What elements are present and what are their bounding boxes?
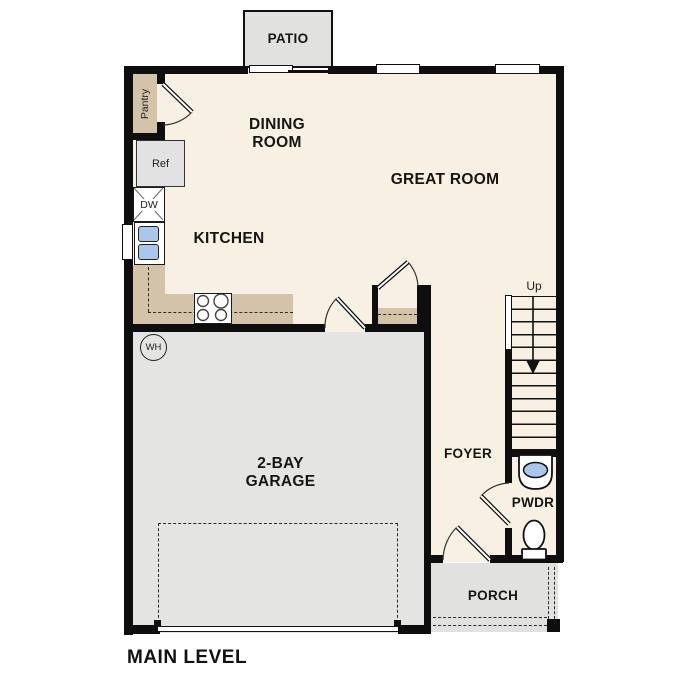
- garage-label: 2-BAY GARAGE: [233, 455, 328, 492]
- wall-segment: [124, 66, 248, 74]
- great-room-label: GREAT ROOM: [370, 171, 520, 189]
- closet-wall: [372, 285, 378, 324]
- dishwasher-label: DW: [139, 199, 159, 211]
- garage-right-wall: [424, 332, 431, 633]
- refrigerator-label: Ref: [152, 158, 169, 170]
- foyer-label: FOYER: [438, 446, 498, 462]
- wall-segment: [133, 324, 325, 332]
- wall-segment: [365, 324, 431, 332]
- counter-edge-dashed: [148, 267, 149, 312]
- refrigerator-icon: Ref: [136, 140, 185, 187]
- wall-segment: [556, 66, 564, 562]
- sliding-door-panel-icon: [249, 65, 293, 73]
- water-heater-icon: WH: [140, 334, 167, 361]
- closet-shelf: [378, 308, 417, 324]
- porch-edge-dashed: [554, 567, 555, 619]
- kitchen-window-icon: [122, 224, 133, 260]
- patio-area: PATIO: [243, 10, 333, 68]
- floor-plan-canvas: PATIO: [0, 0, 687, 687]
- porch-edge-dashed: [433, 617, 547, 618]
- pantry-label: Pantry: [139, 88, 151, 118]
- dining-room-label: DINING ROOM: [231, 116, 323, 153]
- stairs-up-label: Up: [522, 279, 546, 293]
- pwdr-wall: [505, 528, 512, 555]
- patio-label: PATIO: [268, 31, 309, 47]
- garage-door-path-dashed: [158, 523, 398, 524]
- porch-edge-dashed: [433, 625, 547, 626]
- closet-shelf-dashed: [378, 314, 417, 315]
- porch-edge-dashed: [548, 567, 549, 619]
- pantry-jamb: [157, 74, 165, 84]
- porch-label: PORCH: [455, 588, 531, 604]
- stair-wall: [505, 350, 512, 450]
- water-heater-label: WH: [146, 342, 162, 353]
- pantry-label-wrap: Pantry: [133, 74, 157, 133]
- porch-post: [547, 619, 560, 632]
- wall-segment: [133, 133, 165, 140]
- pantry-jamb: [157, 122, 165, 133]
- garage-door-path-dashed: [397, 523, 398, 623]
- wall-segment: [431, 555, 443, 563]
- stair-half-wall: [505, 295, 512, 350]
- pwdr-sink-icon: [517, 454, 554, 491]
- pwdr-label: PWDR: [508, 495, 558, 511]
- sliding-door-panel-icon: [288, 70, 328, 73]
- pwdr-wall: [505, 457, 512, 483]
- dishwasher-icon: DW: [133, 187, 165, 222]
- stair-treads: [512, 296, 556, 451]
- kitchen-counter-left: [133, 265, 165, 324]
- wall-segment: [124, 625, 160, 634]
- toilet-icon: [520, 519, 548, 561]
- garage-door-panel: [158, 626, 398, 632]
- window-icon: [376, 64, 420, 74]
- window-icon: [495, 64, 540, 74]
- closet-wall: [417, 285, 431, 324]
- wall-segment: [398, 625, 431, 634]
- kitchen-label: KITCHEN: [184, 230, 274, 248]
- wall-segment: [124, 66, 133, 635]
- main-level-title: MAIN LEVEL: [127, 647, 247, 669]
- garage-door-path-dashed: [158, 523, 159, 623]
- stove-icon: [194, 293, 232, 324]
- kitchen-sink-icon: [134, 222, 165, 265]
